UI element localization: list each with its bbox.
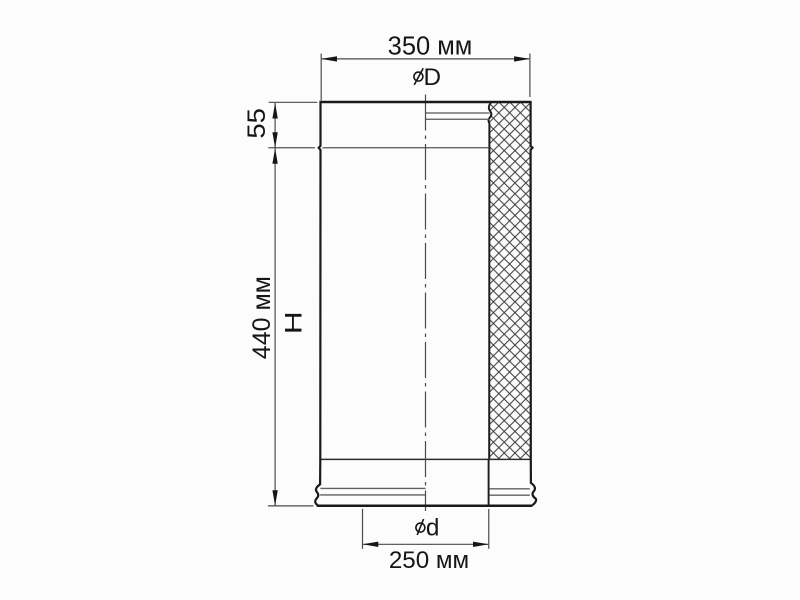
svg-text:55: 55: [242, 108, 271, 139]
svg-text:d: d: [426, 514, 440, 541]
svg-text:250 мм: 250 мм: [389, 547, 469, 574]
svg-text:440 мм: 440 мм: [248, 276, 276, 359]
svg-text:Н: Н: [279, 311, 306, 334]
svg-text:D: D: [424, 64, 442, 91]
svg-text:350 мм: 350 мм: [388, 32, 473, 60]
